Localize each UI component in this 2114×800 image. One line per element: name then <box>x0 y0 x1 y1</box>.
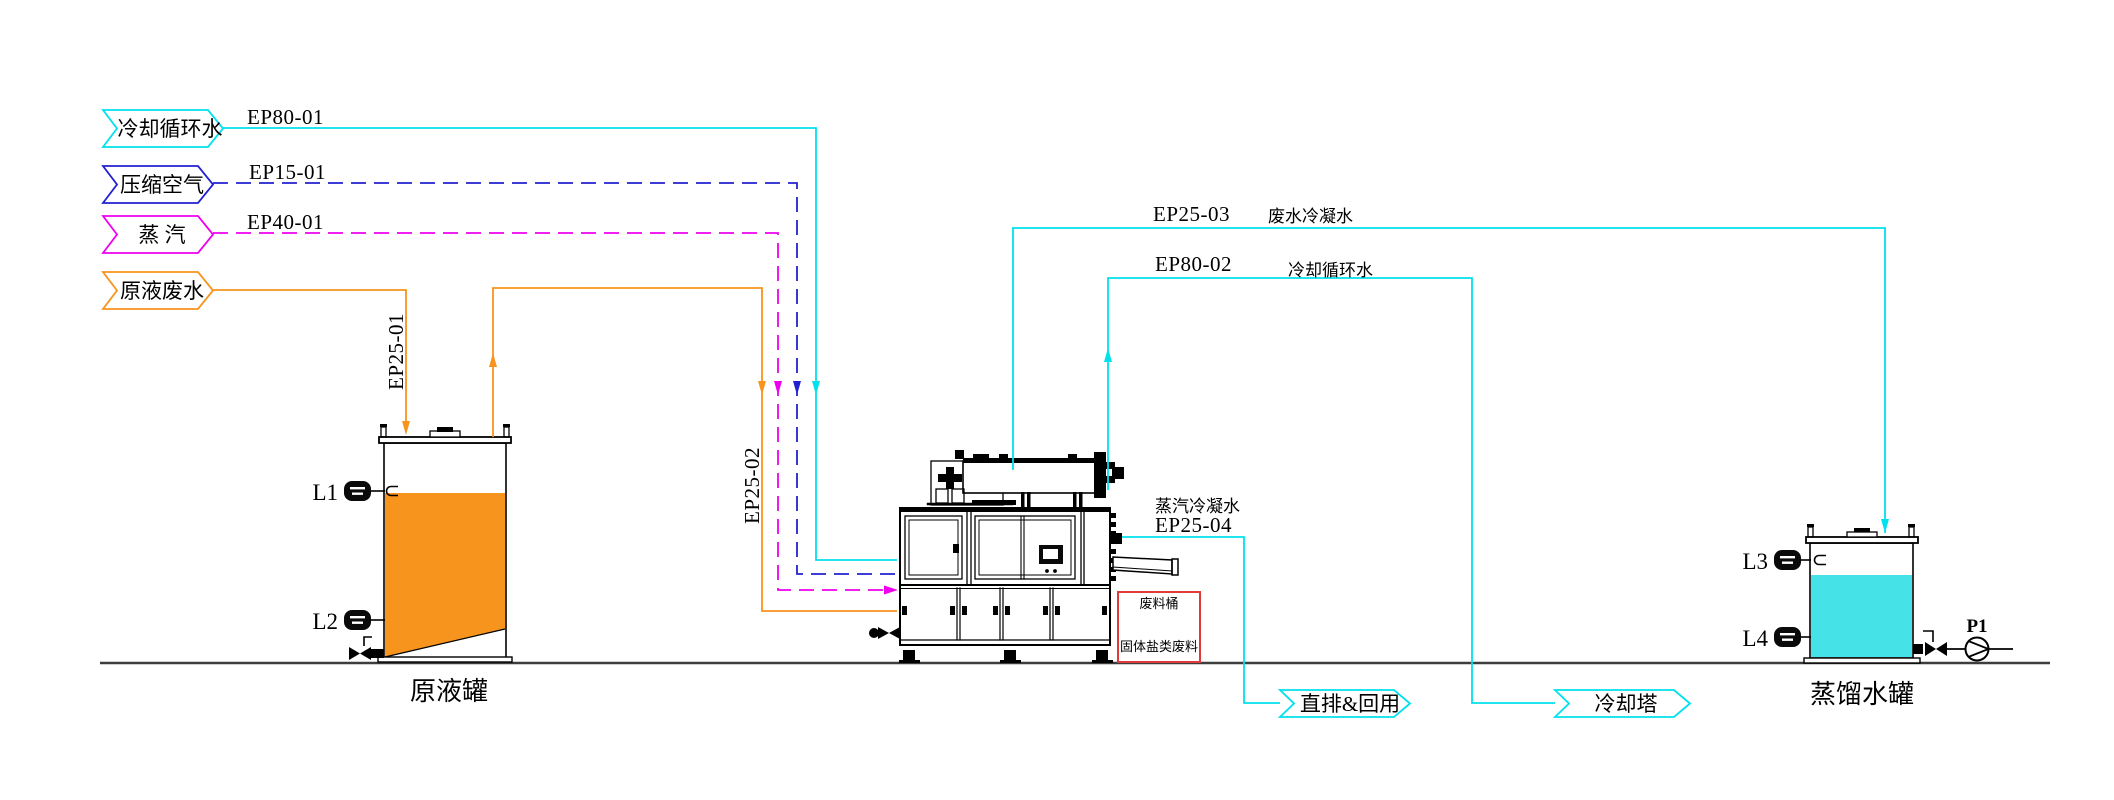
machine-upper-body <box>900 508 1122 585</box>
flow-arrow-down <box>758 381 766 395</box>
flag-cooling-tower: 冷却塔 <box>1555 690 1690 717</box>
drain-nozzle <box>371 649 384 658</box>
door-hinge <box>1055 606 1060 615</box>
level-sensor-L3 <box>1774 550 1826 570</box>
panel-latch <box>953 544 959 553</box>
indicator-dot <box>1053 569 1057 573</box>
flow-arrow-up <box>1104 348 1112 362</box>
valve-icon <box>349 647 360 660</box>
pipe-code-ep40-01: EP40-01 <box>247 210 324 234</box>
flag-raw-wastewater: 原液废水 <box>103 272 213 309</box>
pipe-ep25-02 <box>489 288 897 611</box>
flow-arrow-down <box>402 421 410 435</box>
indicator-dot <box>1045 569 1049 573</box>
raw-tank-manhole-cap <box>437 427 453 432</box>
level-sensor-icon <box>344 481 371 501</box>
stream-label-ep25-03: 废水冷凝水 <box>1268 207 1353 226</box>
door-hinge <box>993 606 998 615</box>
pump-P1 <box>1966 638 1989 661</box>
flow-arrow-down <box>812 381 820 395</box>
distilled-tank-stub-left <box>1808 527 1813 537</box>
flow-arrow-down <box>1881 519 1889 533</box>
pipe-code-ep15-01: EP15-01 <box>249 160 326 184</box>
pipe-code-ep80-02: EP80-02 <box>1155 252 1232 276</box>
raw-tank-stub-cap-left <box>380 424 387 427</box>
level-label-l2: L2 <box>312 609 338 634</box>
waste-box: 废料桶 固体盐类废料 <box>1118 592 1200 662</box>
machine-foot <box>903 650 915 660</box>
level-sensor-L2 <box>344 610 385 630</box>
tank-outlet-valve <box>1913 631 1947 656</box>
flag-label: 冷却循环水 <box>118 117 223 141</box>
level-sensor-icon <box>344 610 371 630</box>
flag-label: 压缩空气 <box>120 173 204 197</box>
flag-discharge-reuse: 直排&回用 <box>1280 690 1410 717</box>
level-sensor-icon <box>1774 627 1801 647</box>
flag-compressed-air: 压缩空气 <box>103 166 213 203</box>
level-sensor-icon <box>1774 550 1801 570</box>
door-hinge <box>962 606 967 615</box>
condenser-flange <box>1094 452 1106 498</box>
distilled-tank-lid <box>1806 537 1918 543</box>
valve-handle <box>869 628 879 638</box>
flag-cooling-water: 冷却循环水 <box>103 110 223 147</box>
pipe-ep25-03 <box>1013 228 1889 533</box>
machine-drain-valve <box>869 627 900 639</box>
waste-box-note: 固体盐类废料 <box>1120 639 1198 654</box>
pump-label: P1 <box>1966 616 1987 637</box>
pipe-code-ep80-01: EP80-01 <box>247 105 324 129</box>
flow-arrow-down <box>774 381 782 395</box>
pipe-code-ep25-02: EP25-02 <box>740 447 764 524</box>
level-probe-icon <box>1815 556 1827 565</box>
distilled-tank-manhole <box>1847 532 1877 537</box>
valve-icon <box>1925 642 1936 656</box>
level-sensor-L4 <box>1774 627 1811 647</box>
flag-steam: 蒸 汽 <box>103 216 213 253</box>
flow-arrow-right <box>884 586 898 595</box>
raw-tank-stub-cap-right <box>503 424 510 427</box>
level-label-l3: L3 <box>1742 549 1768 574</box>
machine-foot <box>1096 650 1108 660</box>
flow-arrow-down <box>793 381 801 395</box>
machine-foot <box>1004 650 1016 660</box>
raw-tank-stub-left <box>381 427 386 437</box>
distilled-tank-stub-right <box>1909 527 1914 537</box>
door-hinge <box>1043 606 1048 615</box>
door-hinge <box>1102 606 1107 615</box>
pipe-code-ep25-01: EP25-01 <box>384 313 408 390</box>
flag-label: 原液废水 <box>120 279 204 303</box>
raw-tank-drain-valve <box>349 637 384 660</box>
raw-tank-stub-right <box>504 427 509 437</box>
pipe-code-ep25-04: EP25-04 <box>1155 513 1232 537</box>
distilled-tank-base <box>1804 658 1920 663</box>
stream-label-ep80-02: 冷却循环水 <box>1288 261 1373 280</box>
condenser-side-fitting <box>1112 467 1124 479</box>
raw-tank-liquid <box>385 493 505 657</box>
outlet-nozzle <box>1913 644 1923 654</box>
level-label-l4: L4 <box>1742 626 1768 651</box>
flag-label: 直排&回用 <box>1300 692 1400 716</box>
flag-label: 蒸 汽 <box>138 223 185 247</box>
pid-diagram: L1 L2 原液罐 <box>0 0 2114 800</box>
door-hinge <box>902 606 907 615</box>
level-label-l1: L1 <box>312 480 338 505</box>
waste-box-title: 废料桶 <box>1139 596 1178 611</box>
raw-tank-lid <box>379 437 511 443</box>
discharge-chute <box>1113 557 1178 575</box>
machine-lower-cabinet <box>869 585 1113 663</box>
door-hinge <box>1005 606 1010 615</box>
distilled-tank-label: 蒸馏水罐 <box>1810 680 1914 709</box>
raw-tank-base <box>378 657 512 662</box>
door-hinge <box>950 606 955 615</box>
distilled-tank-liquid <box>1811 575 1912 657</box>
flag-label: 冷却塔 <box>1595 692 1658 716</box>
pipe-ep25-01 <box>213 290 410 435</box>
condenser-top-knob <box>955 450 964 459</box>
raw-tank-label: 原液罐 <box>410 677 488 706</box>
condenser-unit <box>928 450 1124 509</box>
distilled-water-tank: L3 L4 P1 蒸馏水罐 <box>1742 524 2013 709</box>
flow-arrow-up <box>489 353 497 367</box>
pipe-ep15-01 <box>213 183 897 574</box>
condensate-nozzle <box>1110 533 1122 544</box>
pipe-code-ep25-03: EP25-03 <box>1153 202 1230 226</box>
